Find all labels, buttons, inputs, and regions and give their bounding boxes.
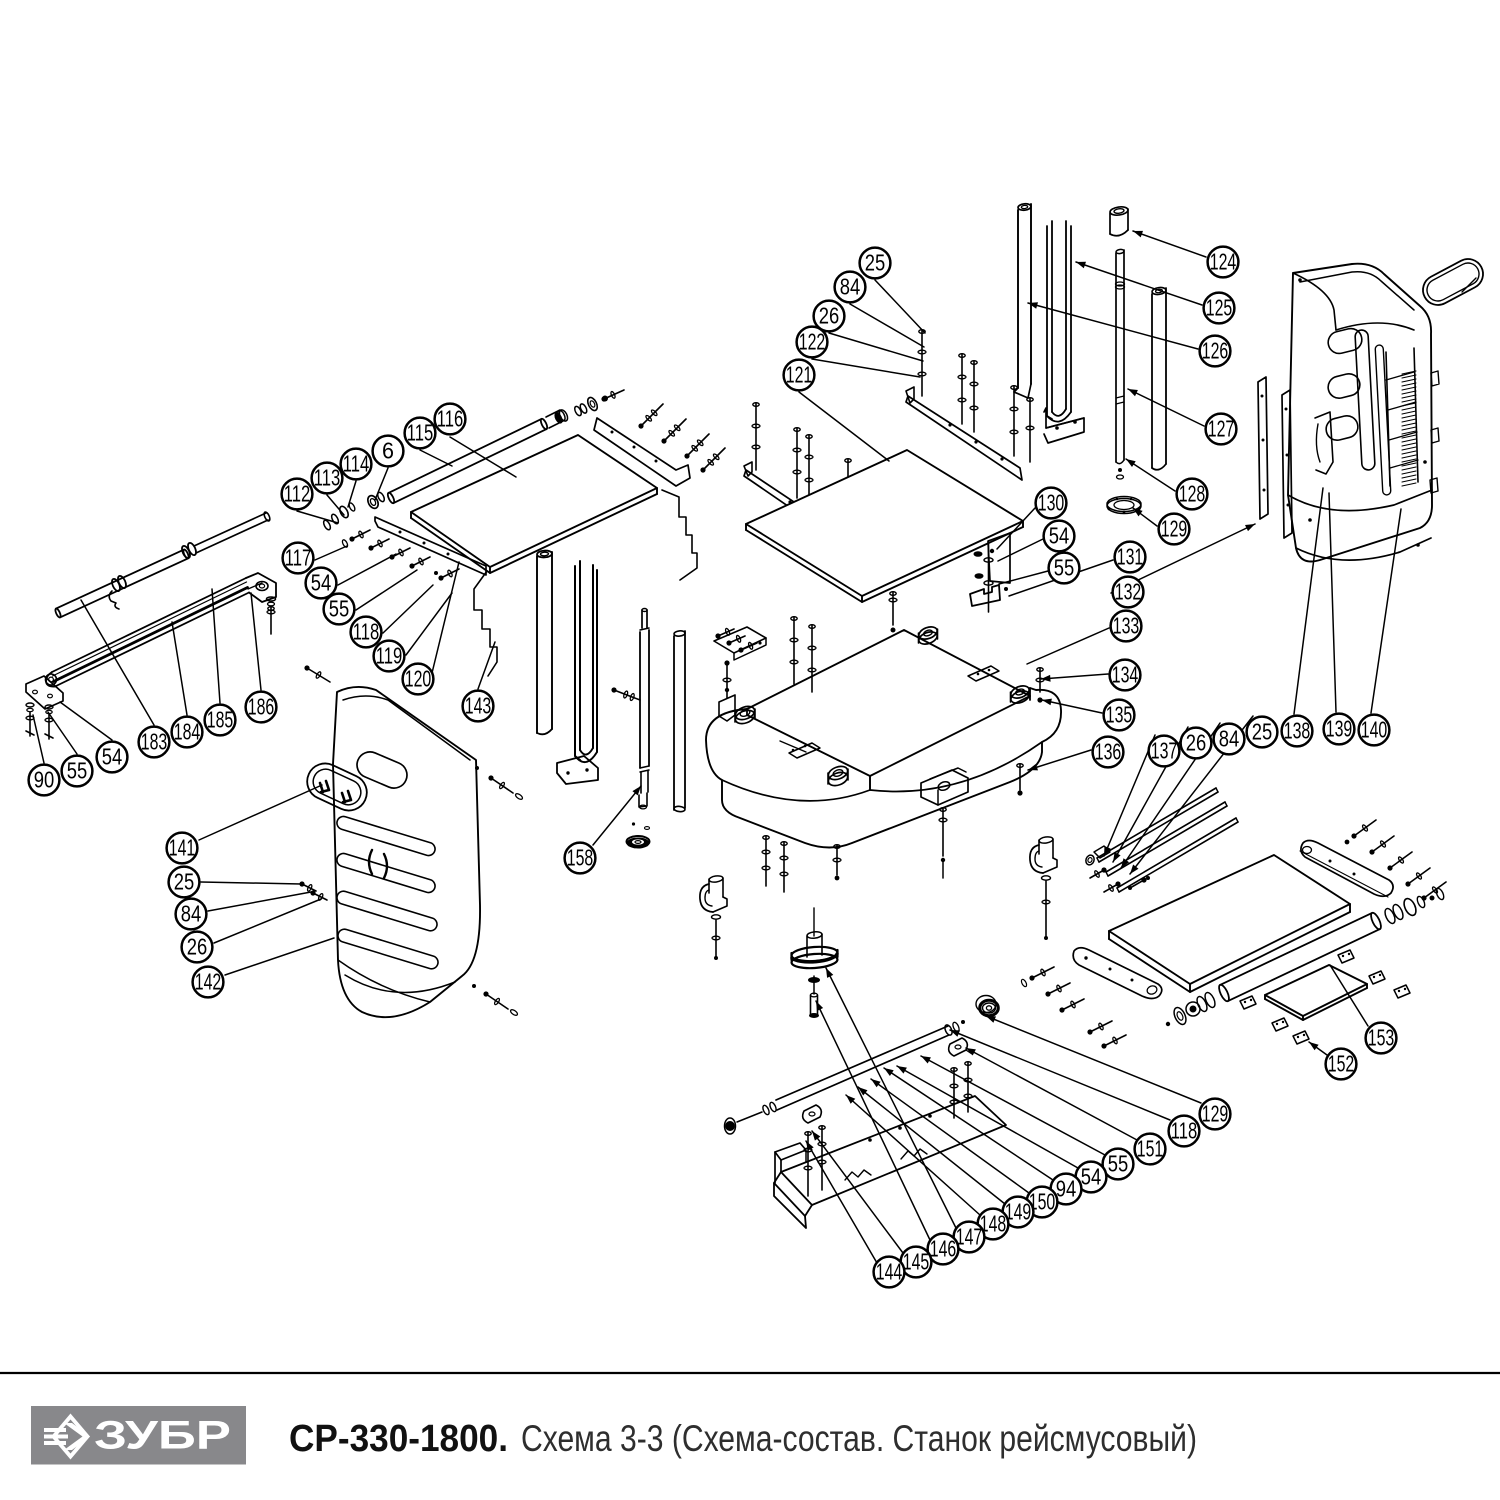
svg-text:141: 141	[169, 835, 196, 861]
svg-text:СР-330-1800.: СР-330-1800.	[289, 1418, 508, 1460]
svg-text:25: 25	[865, 250, 886, 276]
svg-text:143: 143	[465, 693, 492, 719]
svg-text:54: 54	[1081, 1164, 1102, 1190]
svg-text:132: 132	[1115, 579, 1142, 605]
svg-text:121: 121	[786, 362, 813, 388]
svg-text:138: 138	[1284, 718, 1311, 744]
svg-text:133: 133	[1113, 613, 1140, 639]
svg-text:55: 55	[67, 758, 88, 784]
svg-text:119: 119	[376, 643, 403, 669]
svg-text:94: 94	[1056, 1176, 1077, 1202]
svg-text:184: 184	[174, 719, 201, 745]
svg-text:126: 126	[1202, 338, 1229, 364]
svg-text:134: 134	[1112, 662, 1139, 688]
svg-text:147: 147	[956, 1224, 983, 1250]
svg-text:137: 137	[1151, 738, 1178, 764]
svg-text:142: 142	[195, 969, 222, 995]
svg-text:151: 151	[1137, 1136, 1164, 1162]
svg-text:55: 55	[1054, 555, 1075, 581]
svg-text:84: 84	[181, 901, 202, 927]
svg-text:84: 84	[840, 274, 861, 300]
svg-text:Схема 3-3 (Схема-состав. Стано: Схема 3-3 (Схема-состав. Станок рейсмусо…	[521, 1418, 1197, 1459]
svg-text:135: 135	[1106, 702, 1133, 728]
svg-text:136: 136	[1095, 739, 1122, 765]
svg-text:55: 55	[329, 596, 350, 622]
svg-text:129: 129	[1202, 1101, 1229, 1127]
svg-text:125: 125	[1206, 295, 1233, 321]
svg-text:152: 152	[1328, 1051, 1355, 1077]
svg-text:113: 113	[314, 465, 341, 491]
svg-text:54: 54	[1049, 523, 1070, 549]
svg-text:139: 139	[1326, 716, 1353, 742]
svg-text:115: 115	[407, 420, 434, 446]
svg-text:26: 26	[1186, 730, 1207, 756]
svg-text:144: 144	[876, 1259, 903, 1285]
svg-text:122: 122	[799, 329, 826, 355]
svg-text:124: 124	[1210, 249, 1237, 275]
svg-text:185: 185	[207, 707, 234, 733]
svg-text:116: 116	[437, 406, 464, 432]
svg-text:112: 112	[284, 481, 311, 507]
svg-text:117: 117	[285, 545, 312, 571]
svg-text:84: 84	[1219, 726, 1240, 752]
svg-text:186: 186	[248, 694, 275, 720]
svg-text:158: 158	[567, 845, 594, 871]
svg-text:153: 153	[1368, 1025, 1395, 1051]
svg-text:55: 55	[1108, 1151, 1129, 1177]
svg-text:183: 183	[141, 729, 168, 755]
svg-text:6: 6	[382, 438, 394, 464]
svg-text:127: 127	[1208, 416, 1235, 442]
svg-text:54: 54	[311, 570, 332, 596]
svg-text:120: 120	[405, 666, 432, 692]
svg-text:26: 26	[187, 934, 208, 960]
svg-text:114: 114	[343, 451, 370, 477]
svg-text:140: 140	[1361, 717, 1388, 743]
svg-text:25: 25	[1252, 719, 1273, 745]
svg-text:26: 26	[819, 303, 840, 329]
svg-text:129: 129	[1161, 516, 1188, 542]
svg-text:25: 25	[174, 869, 195, 895]
svg-text:131: 131	[1117, 544, 1144, 570]
svg-text:54: 54	[102, 744, 123, 770]
svg-text:146: 146	[930, 1236, 957, 1262]
svg-text:90: 90	[34, 767, 55, 793]
svg-text:130: 130	[1038, 490, 1065, 516]
svg-text:118: 118	[353, 619, 380, 645]
svg-text:145: 145	[903, 1249, 930, 1275]
svg-text:128: 128	[1179, 481, 1206, 507]
svg-text:ЗУБР: ЗУБР	[94, 1414, 231, 1458]
svg-text:118: 118	[1171, 1118, 1198, 1144]
